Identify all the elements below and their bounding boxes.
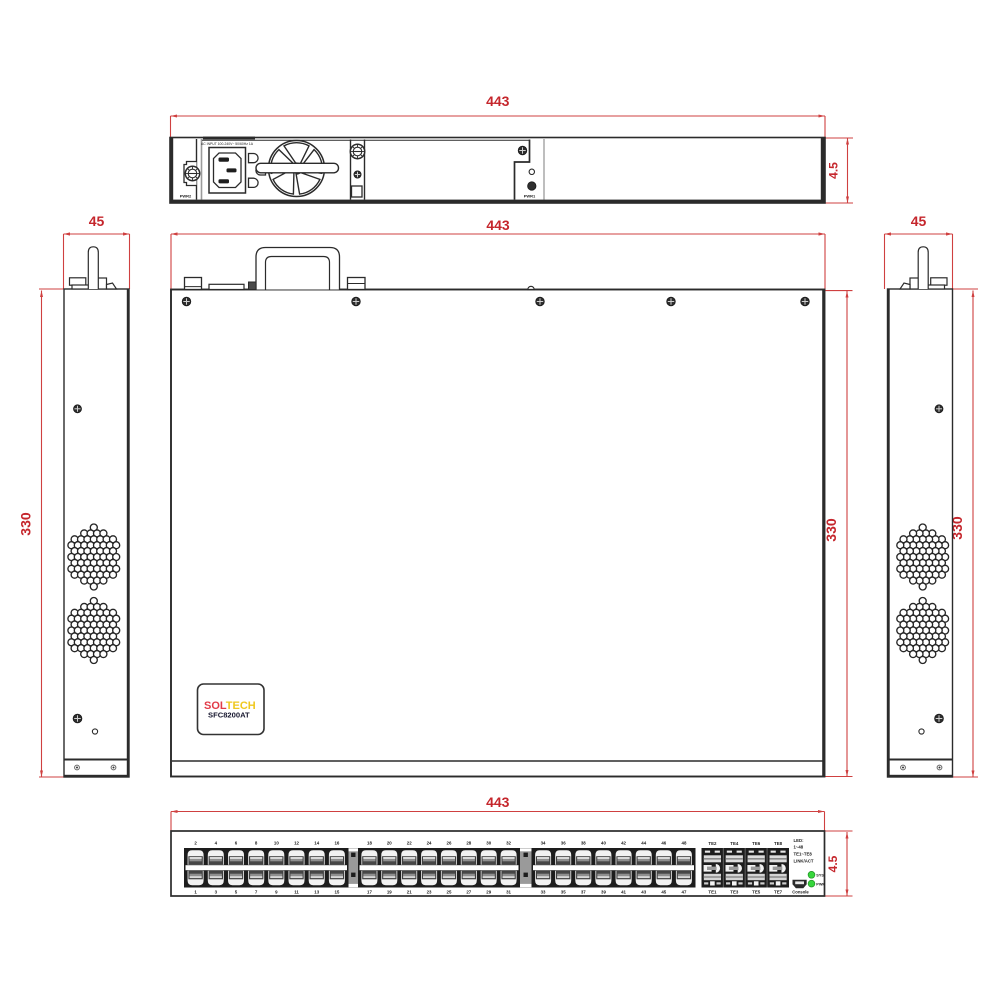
svg-text:19: 19 (387, 890, 392, 895)
svg-text:42: 42 (621, 841, 626, 846)
svg-text:PWR1: PWR1 (524, 194, 536, 199)
svg-text:LINK/ACT: LINK/ACT (794, 859, 814, 864)
svg-text:27: 27 (466, 890, 471, 895)
svg-text:TE1: TE1 (708, 890, 717, 895)
svg-text:1~48: 1~48 (794, 845, 804, 850)
svg-text:443: 443 (486, 794, 510, 810)
svg-text:45: 45 (89, 213, 105, 229)
svg-text:443: 443 (486, 93, 510, 109)
svg-text:PWR2: PWR2 (180, 194, 192, 199)
svg-text:12: 12 (294, 841, 299, 846)
svg-text:43: 43 (641, 890, 646, 895)
svg-text:TE1~TE8: TE1~TE8 (794, 852, 813, 857)
svg-text:13: 13 (314, 890, 319, 895)
svg-text:39: 39 (601, 890, 606, 895)
svg-text:SFC8200AT: SFC8200AT (208, 711, 250, 720)
svg-text:23: 23 (427, 890, 432, 895)
svg-text:37: 37 (581, 890, 586, 895)
svg-text:TE7: TE7 (774, 890, 783, 895)
svg-text:45: 45 (911, 213, 927, 229)
svg-text:4.5: 4.5 (826, 855, 840, 872)
svg-text:LED:: LED: (794, 838, 805, 843)
svg-text:21: 21 (407, 890, 412, 895)
svg-text:17: 17 (367, 890, 372, 895)
svg-text:15: 15 (334, 890, 339, 895)
svg-text:11: 11 (294, 890, 299, 895)
svg-text:22: 22 (407, 841, 412, 846)
svg-text:10: 10 (274, 841, 279, 846)
svg-text:35: 35 (561, 890, 566, 895)
svg-text:14: 14 (314, 841, 319, 846)
svg-text:30: 30 (486, 841, 491, 846)
svg-text:330: 330 (18, 512, 34, 536)
svg-text:Console: Console (792, 890, 809, 895)
svg-text:20: 20 (387, 841, 392, 846)
svg-text:34: 34 (541, 841, 546, 846)
svg-text:47: 47 (682, 890, 687, 895)
svg-text:33: 33 (541, 890, 546, 895)
svg-text:28: 28 (466, 841, 471, 846)
svg-text:AC INPUT 100-240V~ 50/60Hz 1A: AC INPUT 100-240V~ 50/60Hz 1A (201, 142, 254, 146)
svg-text:16: 16 (334, 841, 339, 846)
svg-text:45: 45 (661, 890, 666, 895)
svg-text:SYS: SYS (816, 874, 824, 878)
svg-text:32: 32 (506, 841, 511, 846)
svg-text:4.5: 4.5 (827, 162, 841, 179)
svg-text:44: 44 (641, 841, 646, 846)
svg-text:24: 24 (427, 841, 432, 846)
svg-text:48: 48 (682, 841, 687, 846)
svg-text:36: 36 (561, 841, 566, 846)
svg-text:26: 26 (447, 841, 452, 846)
svg-text:25: 25 (447, 890, 452, 895)
svg-text:TE6: TE6 (752, 841, 761, 846)
svg-text:PWR: PWR (816, 882, 825, 886)
svg-text:38: 38 (581, 841, 586, 846)
svg-text:46: 46 (661, 841, 666, 846)
svg-text:TE8: TE8 (774, 841, 783, 846)
svg-text:TE4: TE4 (730, 841, 739, 846)
svg-text:443: 443 (486, 217, 510, 233)
svg-text:29: 29 (486, 890, 491, 895)
svg-text:31: 31 (506, 890, 511, 895)
svg-text:TE2: TE2 (708, 841, 717, 846)
svg-text:41: 41 (621, 890, 626, 895)
svg-text:TE5: TE5 (752, 890, 761, 895)
svg-text:18: 18 (367, 841, 372, 846)
svg-text:TE3: TE3 (730, 890, 739, 895)
svg-text:40: 40 (601, 841, 606, 846)
